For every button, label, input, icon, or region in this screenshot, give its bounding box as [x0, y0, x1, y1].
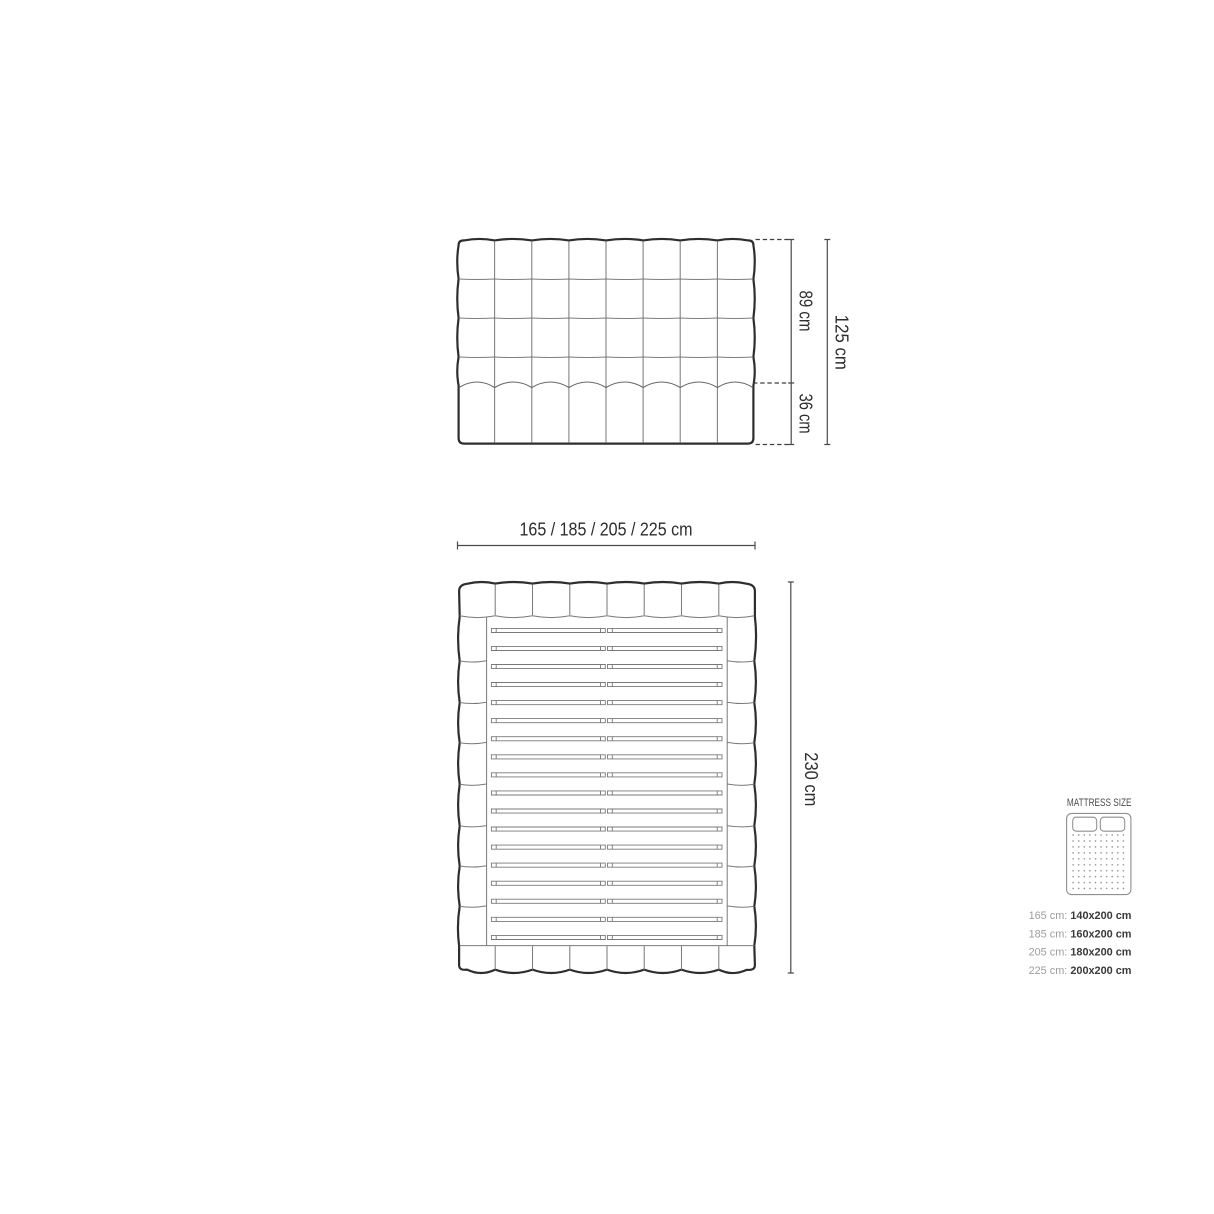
svg-text:125 cm: 125 cm — [832, 315, 852, 370]
svg-text:36 cm: 36 cm — [796, 394, 816, 434]
svg-text:205 cm: 180x200 cm: 205 cm: 180x200 cm — [1029, 947, 1132, 959]
svg-text:165 / 185 / 205 / 225 cm: 165 / 185 / 205 / 225 cm — [520, 519, 693, 540]
svg-text:89 cm: 89 cm — [796, 291, 816, 332]
svg-text:230 cm: 230 cm — [801, 752, 821, 806]
svg-text:165 cm: 140x200 cm: 165 cm: 140x200 cm — [1029, 910, 1132, 922]
svg-text:MATTRESS SIZE: MATTRESS SIZE — [1067, 797, 1132, 809]
svg-text:225 cm: 200x200 cm: 225 cm: 200x200 cm — [1029, 965, 1132, 977]
svg-text:185 cm: 160x200 cm: 185 cm: 160x200 cm — [1029, 928, 1132, 940]
